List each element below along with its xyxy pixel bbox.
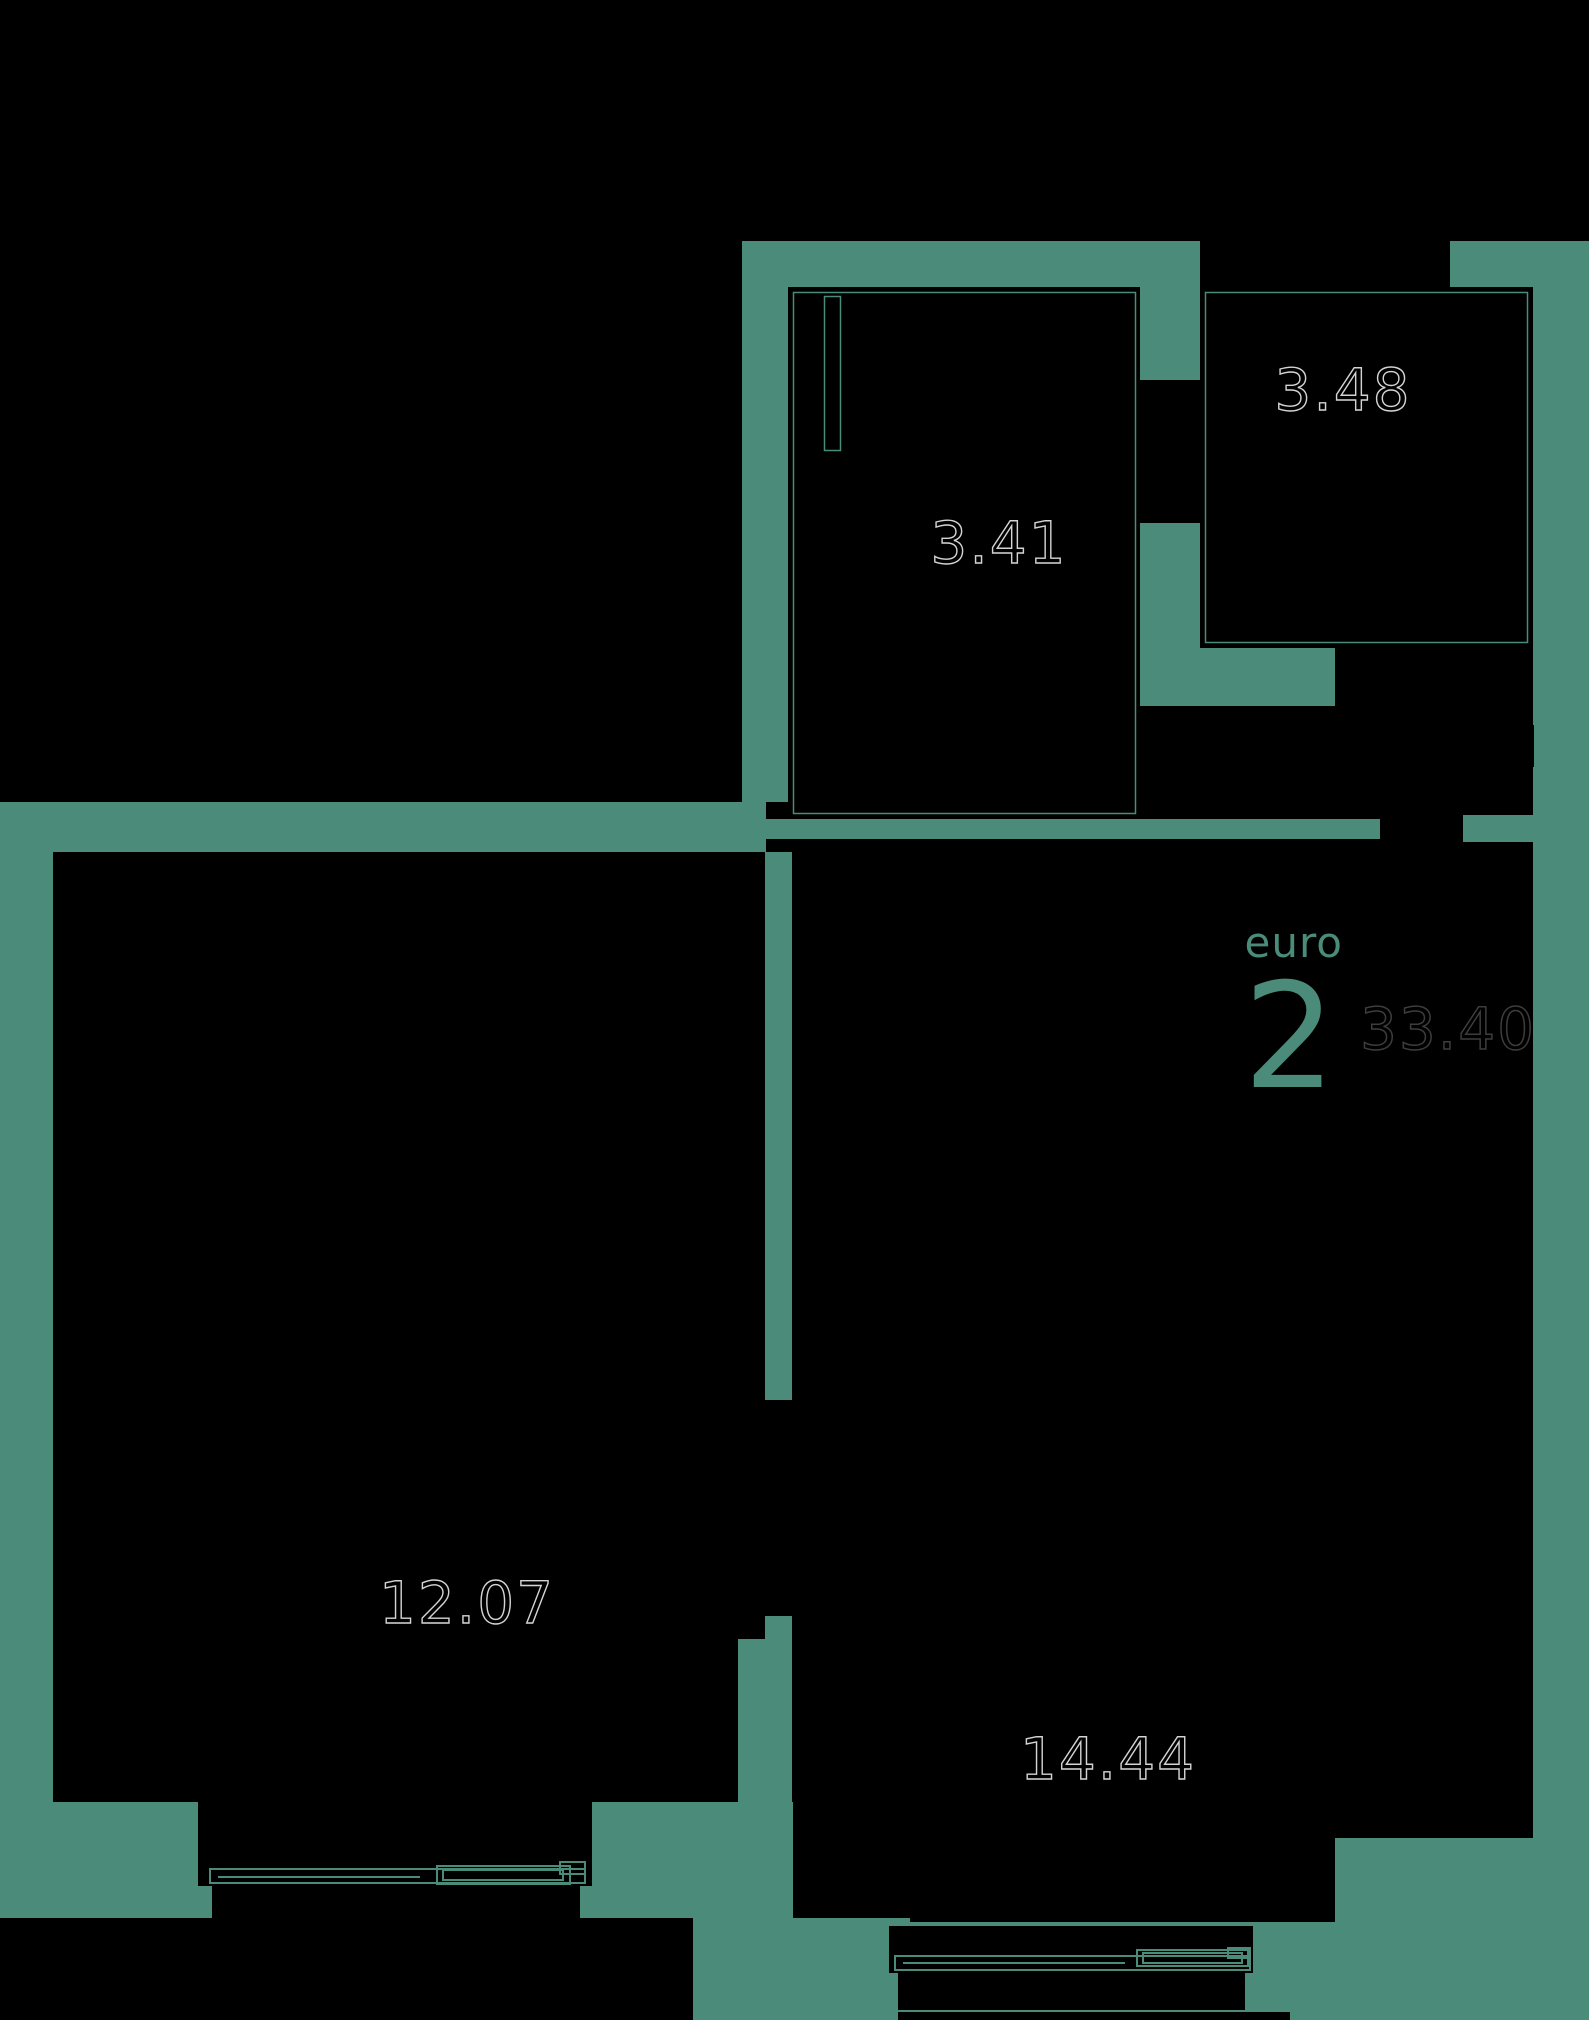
door-jamb-tick-upper bbox=[765, 1400, 792, 1403]
left-window-opening bbox=[198, 1802, 592, 1886]
room-area-label-bath: 3.41 bbox=[930, 509, 1067, 577]
bath-left-wall bbox=[742, 241, 788, 802]
right-window-sill-gap bbox=[898, 1973, 1245, 2010]
bath-fixture-outline bbox=[825, 297, 841, 451]
middle-wall-lower-extension bbox=[738, 1639, 792, 1802]
door-jamb-tick-lower bbox=[765, 1613, 792, 1616]
middle-wall-upper-segment bbox=[765, 852, 792, 1403]
bath-hall-divider-lower bbox=[1140, 523, 1200, 648]
bottom-edge-strip bbox=[898, 2012, 1290, 2020]
room-area-label-hall: 3.48 bbox=[1274, 356, 1411, 424]
walls bbox=[0, 241, 1589, 2020]
right-exterior-wall-lower bbox=[1335, 1838, 1589, 2020]
floor-plan: 3.48 3.41 12.07 14.44 euro 2 33.40 bbox=[0, 0, 1589, 2020]
labels: 3.48 3.41 12.07 14.44 euro 2 33.40 bbox=[379, 356, 1536, 1793]
top-wall-left-segment bbox=[742, 241, 1200, 287]
right-exterior-wall-upper bbox=[1533, 287, 1589, 1838]
top-wall-right-segment bbox=[1450, 241, 1589, 287]
corridor-band-left bbox=[766, 819, 1380, 839]
main-horizontal-wall bbox=[0, 802, 766, 852]
bath-hall-divider-upper bbox=[1140, 287, 1200, 380]
room-area-label-left: 12.07 bbox=[379, 1569, 555, 1637]
right-wall-jamb-notch bbox=[1531, 725, 1534, 767]
left-exterior-wall bbox=[0, 802, 53, 1918]
total-area-label: 33.40 bbox=[1360, 995, 1536, 1063]
left-window-sill-gap bbox=[212, 1886, 580, 1918]
corridor-band-right bbox=[1463, 815, 1533, 842]
rooms-count: 2 bbox=[1243, 952, 1336, 1122]
hall-interior-outline bbox=[1206, 293, 1528, 643]
room-area-label-right: 14.44 bbox=[1020, 1725, 1196, 1793]
hall-bottom-wall bbox=[1140, 648, 1335, 706]
